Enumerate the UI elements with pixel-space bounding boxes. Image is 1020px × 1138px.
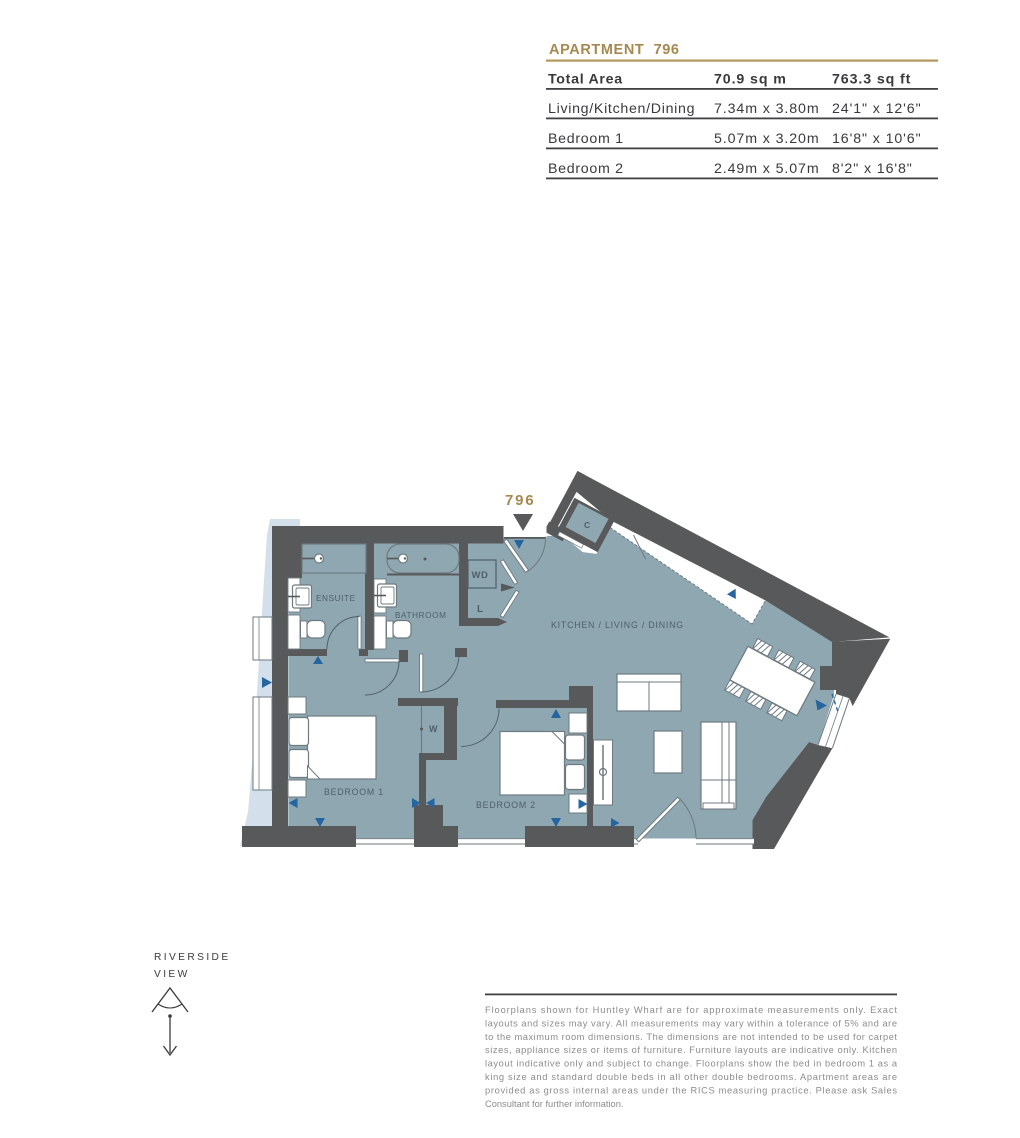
svg-text:2.49m x 5.07m: 2.49m x 5.07m <box>714 161 820 177</box>
svg-text:796: 796 <box>505 492 535 509</box>
svg-text:WD: WD <box>472 570 489 581</box>
svg-text:BATHROOM: BATHROOM <box>395 611 447 620</box>
svg-text:C: C <box>584 520 591 530</box>
svg-text:5.07m x 3.20m: 5.07m x 3.20m <box>714 131 820 147</box>
svg-text:Floorplans shown for Huntley W: Floorplans shown for Huntley Wharf are f… <box>485 1005 897 1015</box>
svg-text:RIVERSIDE: RIVERSIDE <box>154 952 231 963</box>
svg-text:KITCHEN / LIVING / DINING: KITCHEN / LIVING / DINING <box>551 620 684 630</box>
svg-text:70.9 sq m: 70.9 sq m <box>714 72 787 88</box>
svg-text:16'8" x 10'6": 16'8" x 10'6" <box>832 131 922 147</box>
svg-text:7.34m x 3.80m: 7.34m x 3.80m <box>714 101 820 117</box>
svg-text:BEDROOM 1: BEDROOM 1 <box>324 787 384 797</box>
svg-text:king size and standard double: king size and standard double beds in al… <box>485 1072 897 1082</box>
svg-text:layout indicative only and sub: layout indicative only and subject to ch… <box>485 1059 898 1069</box>
svg-text:Consultant for further informa: Consultant for further information. <box>485 1099 624 1109</box>
svg-text:24'1" x 12'6": 24'1" x 12'6" <box>832 101 922 117</box>
svg-text:layouts and sizes may vary. Al: layouts and sizes may vary. All measurem… <box>485 1018 897 1028</box>
svg-text:sizes, appliance sizes or item: sizes, appliance sizes or items of furni… <box>485 1045 897 1055</box>
svg-text:VIEW: VIEW <box>154 969 190 980</box>
svg-text:8'2" x 16'8": 8'2" x 16'8" <box>832 161 913 177</box>
svg-text:ENSUITE: ENSUITE <box>316 594 356 603</box>
svg-text:Total Area: Total Area <box>548 72 623 88</box>
svg-text:APARTMENT 796: APARTMENT 796 <box>549 42 680 58</box>
svg-text:provided as gross internal are: provided as gross internal areas under t… <box>485 1085 897 1095</box>
svg-text:763.3 sq ft: 763.3 sq ft <box>832 72 911 88</box>
svg-text:Bedroom 1: Bedroom 1 <box>548 131 624 147</box>
svg-text:W: W <box>429 724 438 734</box>
svg-text:BEDROOM 2: BEDROOM 2 <box>476 800 536 810</box>
svg-text:Living/Kitchen/Dining: Living/Kitchen/Dining <box>548 101 695 117</box>
svg-text:Bedroom 2: Bedroom 2 <box>548 161 624 177</box>
svg-text:L: L <box>477 604 483 615</box>
svg-text:to the maximum room dimensions: to the maximum room dimensions. The dime… <box>485 1032 897 1042</box>
